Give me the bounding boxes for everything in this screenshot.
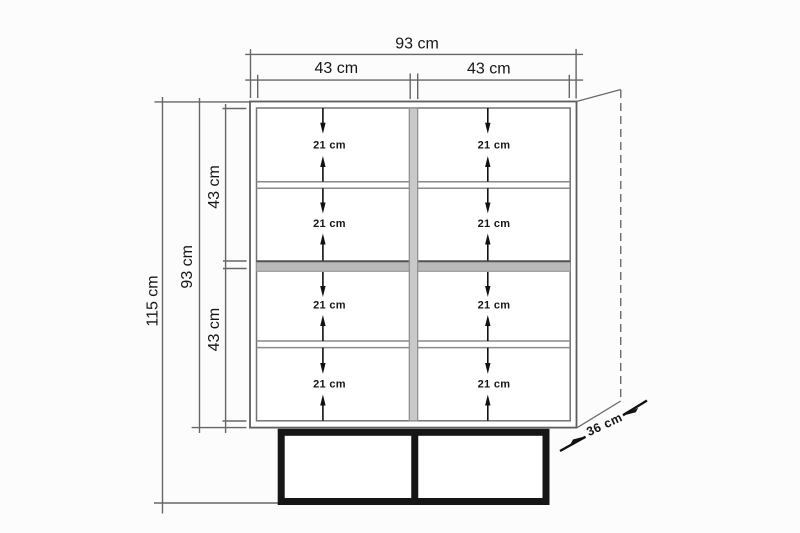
svg-text:43 cm: 43 cm bbox=[315, 60, 359, 77]
svg-text:115 cm: 115 cm bbox=[145, 275, 162, 326]
svg-text:43 cm: 43 cm bbox=[467, 60, 511, 77]
svg-text:21 cm: 21 cm bbox=[313, 379, 346, 391]
svg-text:93 cm: 93 cm bbox=[179, 245, 196, 289]
svg-text:21 cm: 21 cm bbox=[313, 299, 346, 311]
svg-text:43 cm: 43 cm bbox=[206, 308, 223, 352]
svg-text:21 cm: 21 cm bbox=[313, 140, 346, 152]
svg-text:21 cm: 21 cm bbox=[478, 218, 511, 230]
svg-text:43 cm: 43 cm bbox=[206, 165, 223, 209]
svg-text:21 cm: 21 cm bbox=[478, 379, 511, 391]
svg-text:21 cm: 21 cm bbox=[313, 218, 346, 230]
svg-text:93 cm: 93 cm bbox=[395, 36, 439, 53]
svg-text:21 cm: 21 cm bbox=[478, 299, 511, 311]
svg-text:21 cm: 21 cm bbox=[478, 140, 511, 152]
